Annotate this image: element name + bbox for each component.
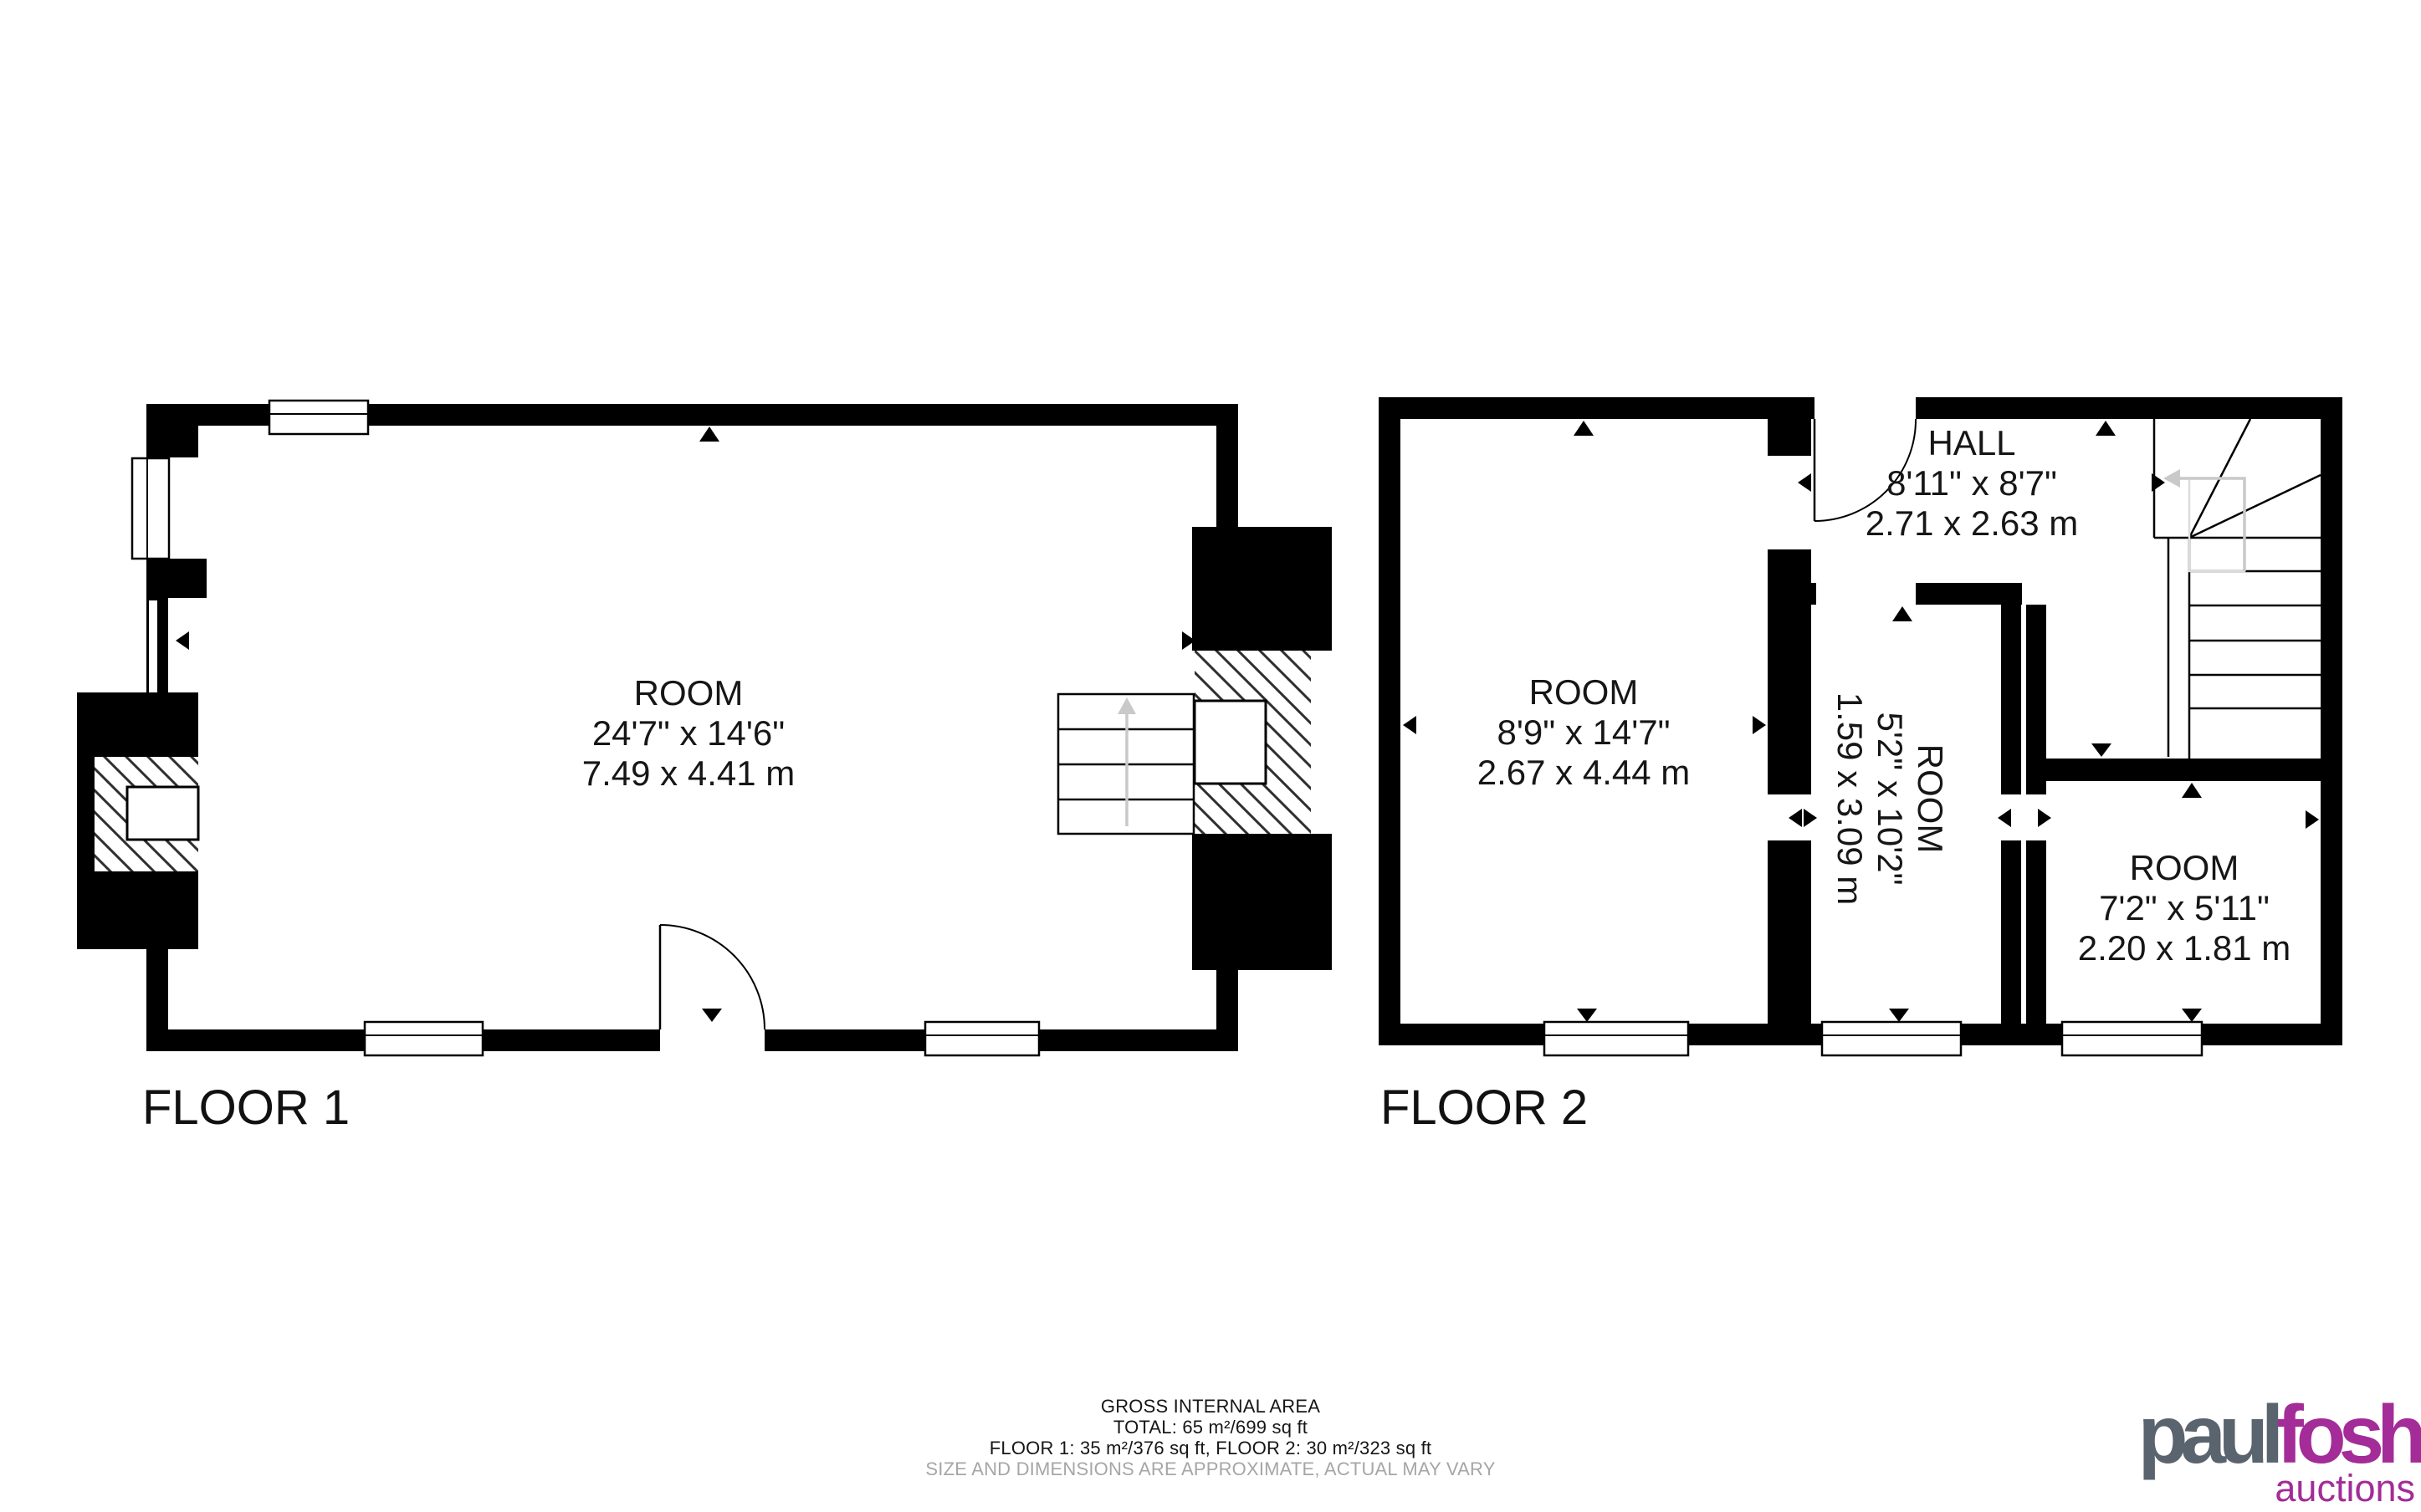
floorplan-page: ROOM 24'7" x 14'6" 7.49 x 4.41 m FLOOR 1: [0, 0, 2421, 1512]
floor1-pier-midleft: [146, 559, 207, 598]
logo-wordmark: paulfosh: [2138, 1396, 2419, 1473]
floor1-room-name: ROOM: [634, 673, 744, 713]
floor1-window-top: [269, 401, 368, 434]
floor1-pier-topleft: [146, 406, 198, 457]
floor2-midroom-label: ROOM 5'2" x 10'2" 1.59 x 3.09 m: [1830, 692, 1950, 905]
marker-right-icon: [2152, 473, 2165, 492]
marker-down-icon: [2182, 1009, 2202, 1022]
floor2-plan: HALL 8'11" x 8'7" 2.71 x 2.63 m ROOM 8'9…: [1379, 397, 2342, 1135]
marker-down-icon: [702, 1009, 722, 1022]
marker-up-icon: [1574, 421, 1594, 436]
floor1-staircase: [1058, 694, 1194, 834]
floor2-wall-left: [1379, 397, 1400, 1045]
area-summary: GROSS INTERNAL AREA TOTAL: 65 m²/699 sq …: [0, 1396, 2421, 1479]
floor1-window-bottom-left: [365, 1022, 483, 1055]
marker-up-icon: [1892, 606, 1912, 621]
stairwell-outline: [2154, 419, 2189, 759]
area-summary-total: TOTAL: 65 m²/699 sq ft: [0, 1417, 2421, 1438]
floor2-midroom-name: ROOM: [1911, 744, 1950, 854]
marker-up-icon: [2096, 421, 2116, 436]
floor1-room-imperial: 24'7" x 14'6": [592, 713, 785, 753]
floor1-room-metric: 7.49 x 4.41 m: [582, 753, 795, 793]
marker-left-icon: [1403, 716, 1416, 734]
floor2-rightroom-name: ROOM: [2130, 848, 2239, 887]
floor1-window-left: [132, 458, 169, 559]
floor2-hall-name: HALL: [1927, 423, 2015, 462]
floor2-title: FLOOR 2: [1380, 1080, 1588, 1135]
floor2-wall-right: [2321, 397, 2342, 1045]
marker-down-icon: [2091, 743, 2111, 757]
floor2-window-left: [1544, 1022, 1688, 1055]
marker-up-icon: [2182, 783, 2202, 798]
floor2-leftroom-metric: 2.67 x 4.44 m: [1477, 753, 1690, 792]
chimney-opening: [1195, 701, 1266, 784]
fireplace-opening: [127, 787, 198, 840]
floor2-rightroom-imperial: 7'2" x 5'11": [2099, 888, 2270, 927]
door-opening: [660, 1029, 765, 1051]
door-opening: [1814, 397, 1916, 419]
floor2-midroom-metric: 1.59 x 3.09 m: [1830, 692, 1870, 905]
stair-direction-arrow-icon: [2163, 469, 2180, 488]
paulfosh-auctions-logo: paulfosh auctions: [2138, 1396, 2419, 1507]
floor1-fireplace: [77, 692, 198, 949]
floor2-midroom-top-wall: [1916, 583, 2022, 605]
floor1-title: FLOOR 1: [142, 1080, 350, 1135]
area-summary-disclaimer: SIZE AND DIMENSIONS ARE APPROXIMATE, ACT…: [0, 1458, 2421, 1479]
floor1-plan: ROOM 24'7" x 14'6" 7.49 x 4.41 m FLOOR 1: [77, 401, 1332, 1135]
floor1-window-bottom-right: [925, 1022, 1039, 1055]
floor2-midroom-top-stub: [1789, 583, 1816, 605]
floor2-leftroom-imperial: 8'9" x 14'7": [1497, 713, 1671, 752]
floor2-midroom-imperial: 5'2" x 10'2": [1871, 713, 1910, 886]
area-summary-floors: FLOOR 1: 35 m²/376 sq ft, FLOOR 2: 30 m²…: [0, 1438, 2421, 1458]
floor2-window-right: [2062, 1022, 2202, 1055]
marker-up-icon: [699, 427, 719, 442]
chimney-lower-block: [1192, 834, 1332, 970]
floorplan-svg: ROOM 24'7" x 14'6" 7.49 x 4.41 m FLOOR 1: [0, 0, 2421, 1512]
area-summary-title: GROSS INTERNAL AREA: [0, 1396, 2421, 1417]
marker-right-icon: [1753, 716, 1766, 734]
floor1-left-opening: [149, 600, 157, 692]
chimney-upper-block: [1192, 527, 1332, 651]
floor2-rightroom-top-wall: [2032, 759, 2342, 781]
marker-down-icon: [1889, 1009, 1909, 1022]
floor2-leftroom-name: ROOM: [1529, 672, 1639, 712]
stair-treads: [2189, 538, 2321, 708]
floor2-staircase: [2154, 419, 2321, 759]
marker-down-icon: [1577, 1009, 1597, 1022]
partition-opening-upper: [1768, 456, 1811, 549]
marker-left-icon: [176, 631, 189, 650]
floor2-window-middle: [1822, 1022, 1961, 1055]
floor2-hall-imperial: 8'11" x 8'7": [1886, 463, 2057, 503]
marker-right-icon: [2306, 810, 2319, 829]
floor1-chimney-breast: [1192, 527, 1332, 970]
floor1-entrance-door: [660, 925, 765, 1051]
logo-paul: paul: [2138, 1388, 2276, 1480]
floor2-rightroom-metric: 2.20 x 1.81 m: [2078, 928, 2290, 968]
floor2-hall-metric: 2.71 x 2.63 m: [1866, 503, 2078, 543]
